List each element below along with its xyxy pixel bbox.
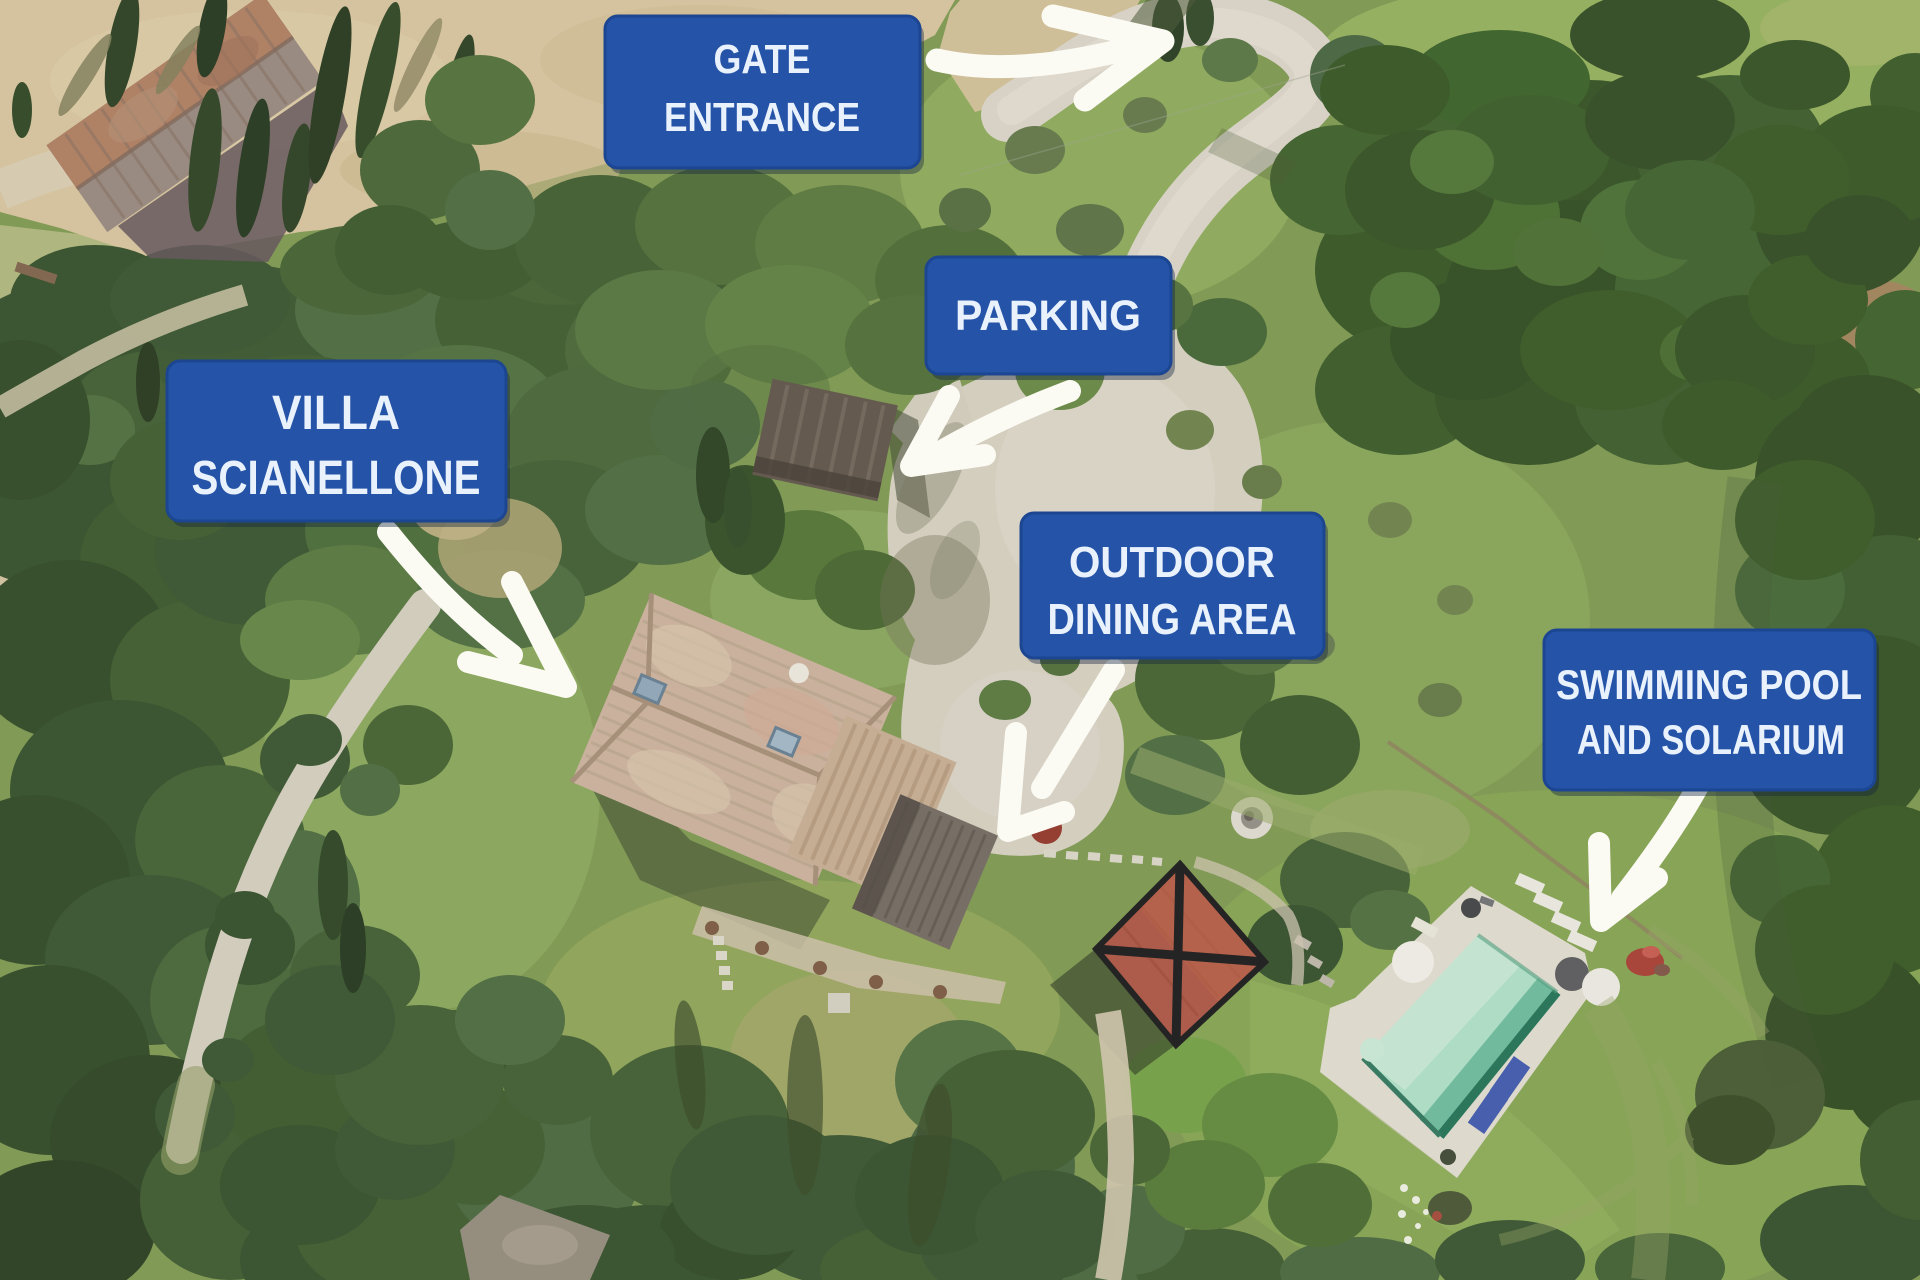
svg-text:DINING AREA: DINING AREA <box>1048 595 1297 644</box>
svg-text:OUTDOOR: OUTDOOR <box>1069 538 1275 587</box>
svg-text:SWIMMING POOL: SWIMMING POOL <box>1556 661 1862 708</box>
svg-text:AND SOLARIUM: AND SOLARIUM <box>1577 716 1845 763</box>
svg-text:SCIANELLONE: SCIANELLONE <box>192 452 481 505</box>
svg-text:VILLA: VILLA <box>272 387 400 440</box>
svg-text:ENTRANCE: ENTRANCE <box>664 94 860 140</box>
svg-text:GATE: GATE <box>714 36 811 82</box>
svg-text:PARKING: PARKING <box>955 292 1141 340</box>
